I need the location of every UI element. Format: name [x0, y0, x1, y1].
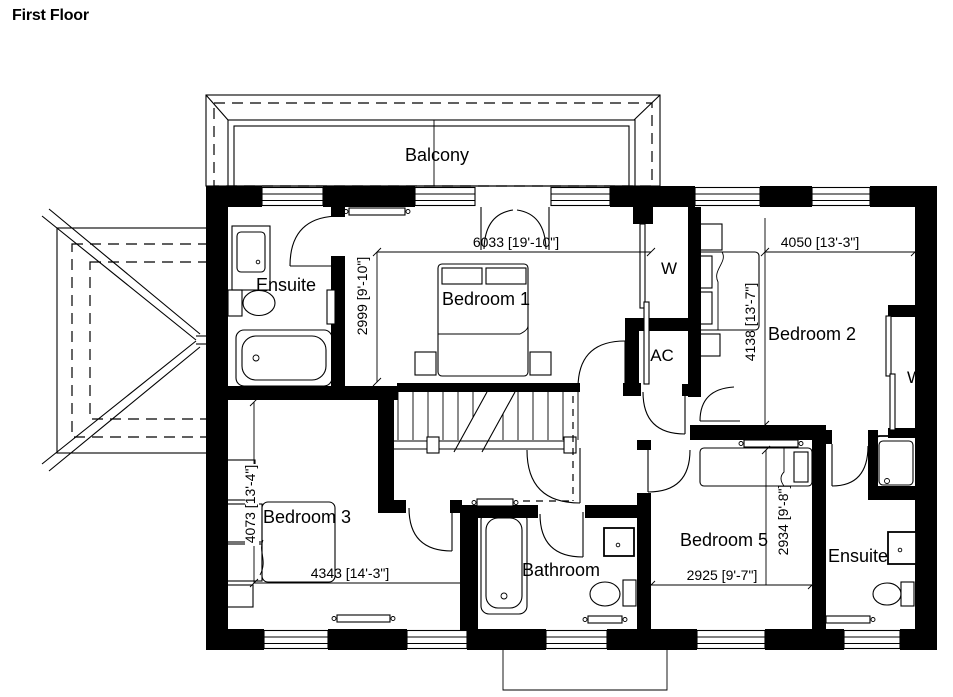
toilet-tank: [228, 290, 242, 316]
shower-tray: [874, 436, 918, 490]
chest: [698, 224, 722, 250]
dim-bedroom5-depth: 2934 [9'-8"]: [775, 485, 791, 556]
toilet-bowl: [873, 583, 901, 605]
side-roof: [42, 209, 207, 471]
dim-bedroom1-depth: 2999 [9'-10"]: [354, 257, 370, 335]
pillow: [225, 544, 262, 581]
pillow: [442, 268, 482, 284]
balcony-structure: [206, 95, 660, 186]
bedroom5-furniture: [700, 448, 812, 486]
room-label-ac: AC: [650, 346, 674, 365]
dim-bedroom2-width: 4050 [13'-3"]: [781, 234, 859, 250]
sink: [604, 528, 634, 556]
floor-plan-svg: First Floor: [0, 0, 953, 697]
room-label-bedroom1: Bedroom 1: [442, 289, 530, 309]
pillow: [700, 256, 712, 288]
room-label-bathroom: Bathroom: [522, 560, 600, 580]
room-label-bedroom2: Bedroom 2: [768, 324, 856, 344]
floor-plan-page: First Floor: [0, 0, 953, 697]
dim-bedroom2-depth: 4138 [13'-7"]: [742, 283, 758, 361]
pillow: [486, 268, 526, 284]
bathtub: [236, 330, 332, 386]
door-bedroom1: [578, 341, 625, 388]
bed: [438, 264, 528, 376]
toilet-tank: [623, 580, 636, 606]
door-ac: [643, 392, 685, 434]
door-bedroom5: [648, 450, 690, 492]
door-landing-lobby: [527, 448, 580, 503]
nightstand: [698, 334, 720, 356]
pillow: [794, 452, 808, 482]
bedroom1-furniture: [415, 264, 551, 376]
bed: [700, 448, 812, 486]
room-label-wardrobe-center: W: [661, 259, 677, 278]
ensuite-top-fixtures: [228, 226, 332, 386]
toilet-tank: [901, 582, 914, 606]
door-bedroom2: [700, 387, 740, 421]
door-bathroom: [540, 512, 583, 557]
room-label-bedroom3: Bedroom 3: [263, 507, 351, 527]
porch-outline: [503, 650, 667, 690]
room-label-ensuite-bottom: Ensuite: [828, 546, 888, 566]
room-label-bedroom5: Bedroom 5: [680, 530, 768, 550]
dim-bedroom1-width: 6033 [19'-10"]: [473, 234, 559, 250]
radiators: [332, 208, 875, 623]
room-label-balcony: Balcony: [405, 145, 469, 165]
nightstand: [530, 352, 551, 375]
room-label-ensuite-top: Ensuite: [256, 275, 316, 295]
toilet-bowl: [590, 582, 620, 606]
dim-bedroom3-width: 4343 [14'-3"]: [311, 565, 389, 581]
door-ensuite-bottom: [832, 444, 868, 486]
stair-newel: [427, 437, 439, 453]
pillow: [700, 292, 712, 324]
room-label-wardrobe-right: W: [907, 368, 923, 387]
door-bedroom3: [409, 506, 452, 551]
nightstand: [415, 352, 436, 375]
staircase: [391, 392, 578, 453]
stair-break-mask: [454, 392, 515, 452]
page-title: First Floor: [12, 7, 89, 24]
stair-newel: [564, 437, 576, 453]
dim-bedroom5-width: 2925 [9'-7"]: [687, 567, 758, 583]
dim-bedroom3-depth: 4073 [13'-4"]: [242, 465, 258, 543]
nightstand: [225, 585, 253, 607]
ensuite-bottom-fixtures: [873, 436, 918, 606]
sink: [888, 532, 916, 564]
